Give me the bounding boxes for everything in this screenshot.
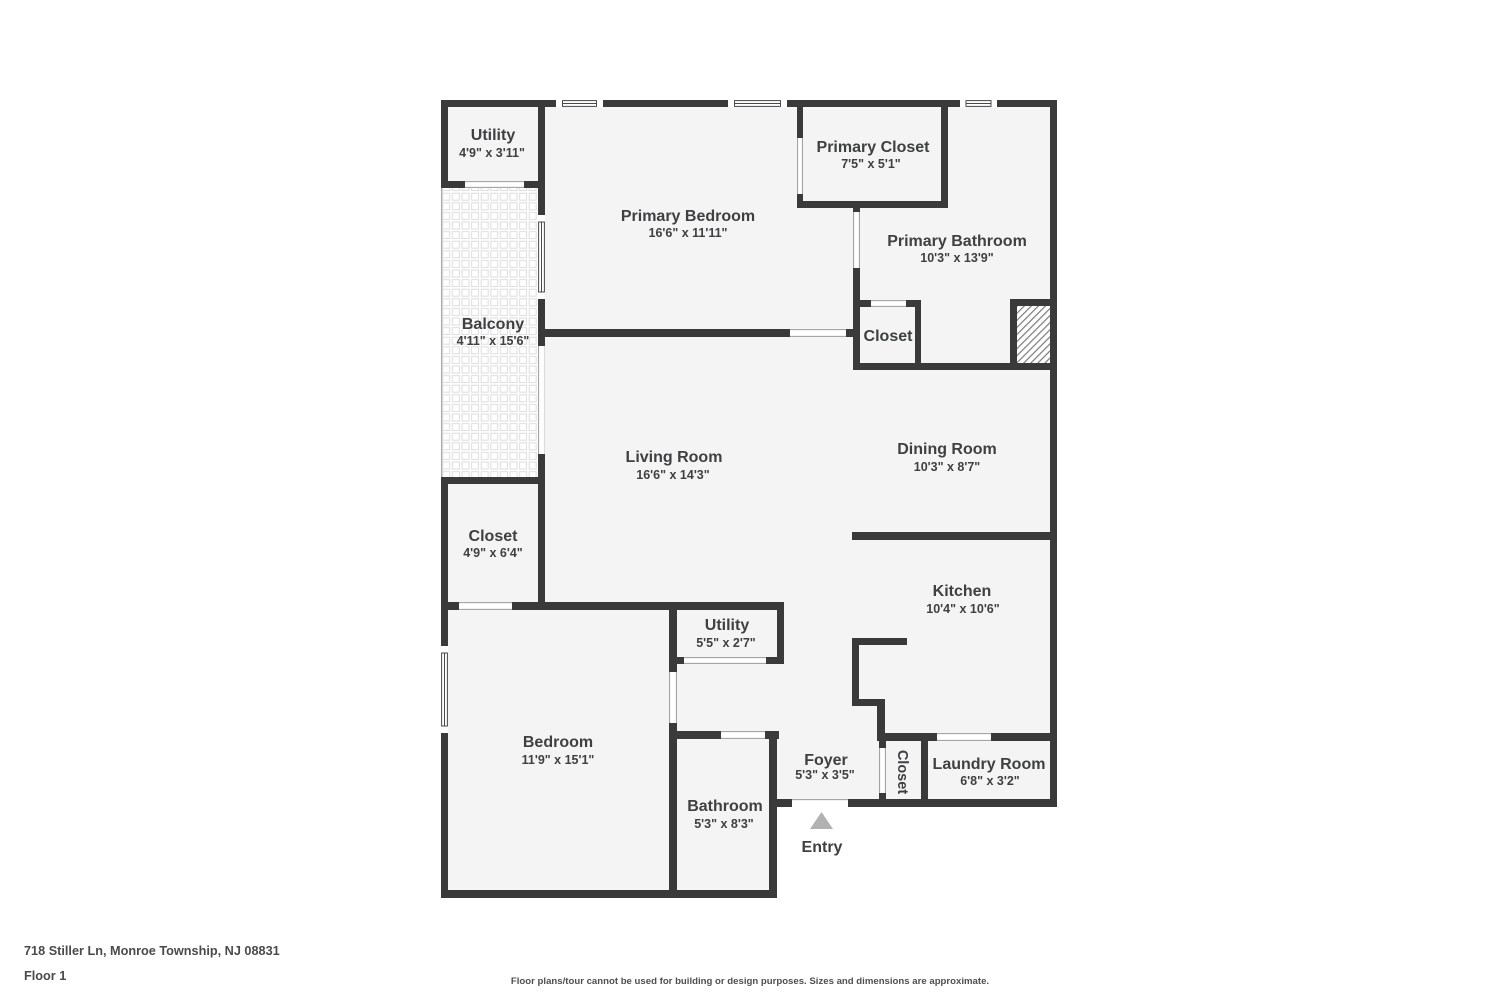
svg-text:10'3" x 13'9": 10'3" x 13'9" — [920, 251, 993, 265]
svg-text:Kitchen: Kitchen — [933, 583, 992, 600]
svg-text:11'9" x 15'1": 11'9" x 15'1" — [522, 753, 595, 767]
svg-text:Floor plans/tour cannot be use: Floor plans/tour cannot be used for buil… — [511, 976, 989, 987]
svg-text:Closet: Closet — [864, 328, 914, 345]
svg-text:10'4" x 10'6": 10'4" x 10'6" — [926, 602, 999, 616]
svg-text:6'8" x 3'2": 6'8" x 3'2" — [960, 774, 1020, 788]
svg-text:10'3" x 8'7": 10'3" x 8'7" — [914, 460, 981, 474]
svg-text:718 Stiller Ln, Monroe Townshi: 718 Stiller Ln, Monroe Township, NJ 0883… — [24, 944, 280, 958]
svg-text:Foyer: Foyer — [804, 752, 848, 769]
svg-text:Primary Closet: Primary Closet — [817, 139, 931, 156]
svg-text:Laundry Room: Laundry Room — [933, 756, 1046, 773]
svg-text:5'5" x 2'7": 5'5" x 2'7" — [696, 636, 756, 650]
svg-text:5'3" x 3'5": 5'3" x 3'5" — [795, 768, 855, 782]
svg-text:Utility: Utility — [705, 617, 750, 634]
svg-text:Entry: Entry — [802, 839, 843, 856]
svg-text:Living Room: Living Room — [626, 449, 723, 466]
svg-text:5'3" x 8'3": 5'3" x 8'3" — [694, 817, 754, 831]
svg-text:Floor 1: Floor 1 — [24, 969, 66, 983]
svg-text:4'11" x 15'6": 4'11" x 15'6" — [457, 334, 530, 348]
svg-text:Closet: Closet — [469, 528, 519, 545]
svg-text:16'6" x 11'11": 16'6" x 11'11" — [649, 226, 728, 240]
svg-text:4'9" x 6'4": 4'9" x 6'4" — [463, 546, 523, 560]
svg-text:Dining Room: Dining Room — [897, 441, 997, 458]
svg-text:Utility: Utility — [471, 127, 516, 144]
svg-text:Primary Bedroom: Primary Bedroom — [621, 208, 755, 225]
svg-text:4'9" x 3'11": 4'9" x 3'11" — [459, 146, 525, 160]
svg-text:Bathroom: Bathroom — [687, 798, 763, 815]
svg-text:7'5" x 5'1": 7'5" x 5'1" — [841, 157, 901, 171]
svg-text:16'6" x 14'3": 16'6" x 14'3" — [636, 468, 709, 482]
svg-text:Balcony: Balcony — [462, 316, 524, 333]
svg-text:Primary Bathroom: Primary Bathroom — [887, 233, 1027, 250]
svg-text:Bedroom: Bedroom — [523, 734, 593, 751]
svg-text:Closet: Closet — [894, 750, 910, 794]
